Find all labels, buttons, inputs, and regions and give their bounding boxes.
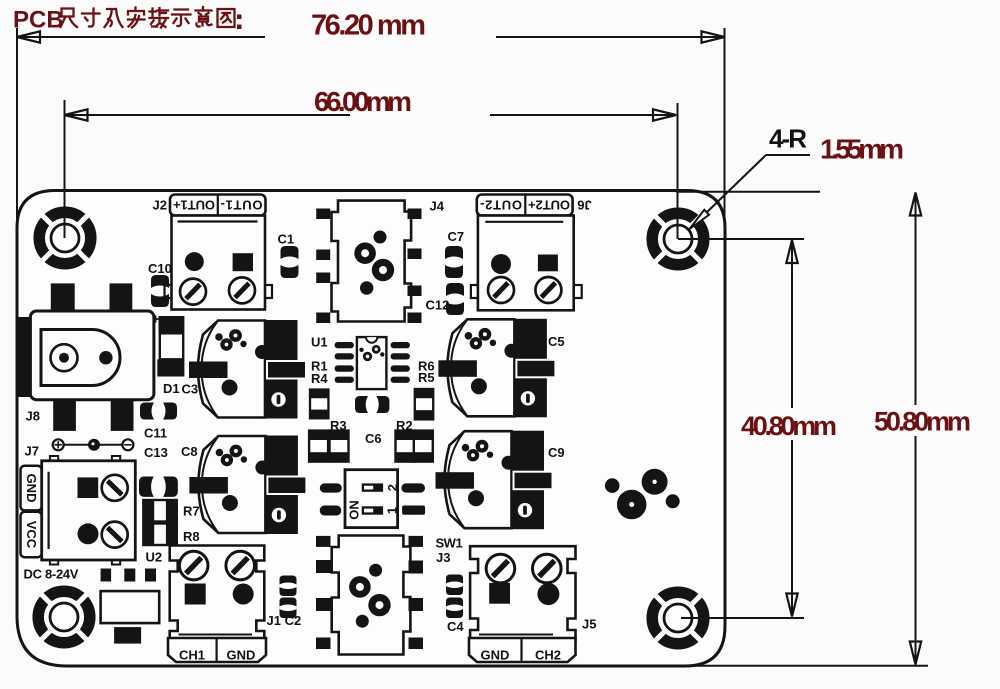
- svg-text:OUT1-: OUT1-: [221, 198, 263, 213]
- svg-text:C10: C10: [148, 261, 172, 276]
- svg-text:U1: U1: [311, 335, 328, 350]
- svg-text:J6: J6: [577, 197, 591, 212]
- svg-text:PCB: PCB: [13, 7, 64, 34]
- svg-text:CH1: CH1: [179, 648, 205, 663]
- svg-text:J7: J7: [25, 444, 39, 459]
- svg-text:C11: C11: [144, 426, 167, 441]
- svg-text:VCC: VCC: [24, 521, 39, 549]
- svg-text:R8: R8: [183, 529, 200, 544]
- svg-text:C13: C13: [144, 445, 168, 460]
- svg-text:40.80mm: 40.80mm: [741, 411, 837, 441]
- svg-text:C7: C7: [448, 229, 465, 244]
- svg-text:R7: R7: [183, 504, 200, 519]
- svg-text:U2: U2: [146, 550, 163, 565]
- svg-text:CH2: CH2: [535, 648, 561, 663]
- svg-text:C1: C1: [278, 232, 295, 247]
- svg-text:OUT2+: OUT2+: [528, 198, 570, 213]
- svg-text:GND: GND: [481, 648, 510, 663]
- svg-text:J2: J2: [153, 198, 167, 213]
- svg-text:J4: J4: [430, 199, 445, 214]
- svg-text:C8: C8: [181, 444, 198, 459]
- svg-text:2: 2: [385, 484, 400, 491]
- svg-text:GND: GND: [24, 474, 39, 503]
- svg-text:J8: J8: [26, 409, 40, 424]
- svg-text:GND: GND: [227, 648, 256, 663]
- svg-text:4-R: 4-R: [769, 124, 807, 154]
- svg-text:C12: C12: [426, 298, 450, 313]
- svg-text:J3: J3: [436, 550, 450, 565]
- svg-text:SW1: SW1: [436, 536, 463, 551]
- svg-text:DC 8-24V: DC 8-24V: [24, 567, 79, 582]
- svg-text:50.80mm: 50.80mm: [874, 407, 971, 437]
- svg-text:66.00mm: 66.00mm: [314, 86, 412, 117]
- svg-text:ON: ON: [347, 500, 362, 520]
- svg-text:OUT1+: OUT1+: [173, 198, 215, 213]
- svg-text:C3: C3: [182, 382, 199, 397]
- svg-text:1: 1: [385, 507, 400, 514]
- svg-text:J5: J5: [582, 617, 596, 632]
- svg-text:D1: D1: [163, 381, 180, 396]
- svg-text:R3: R3: [330, 418, 347, 433]
- svg-text:C5: C5: [548, 334, 565, 349]
- svg-text:C4: C4: [447, 619, 464, 634]
- svg-text:C9: C9: [548, 445, 565, 460]
- svg-text:OUT2-: OUT2-: [480, 198, 522, 213]
- svg-text:1.55mm: 1.55mm: [820, 134, 904, 165]
- svg-text:C6: C6: [365, 431, 382, 446]
- svg-text:R5: R5: [418, 370, 435, 385]
- svg-text:R4: R4: [311, 371, 328, 386]
- svg-text:J1 C2: J1 C2: [267, 613, 302, 628]
- svg-text:R2: R2: [396, 418, 413, 433]
- svg-text:76.20 mm: 76.20 mm: [311, 10, 426, 42]
